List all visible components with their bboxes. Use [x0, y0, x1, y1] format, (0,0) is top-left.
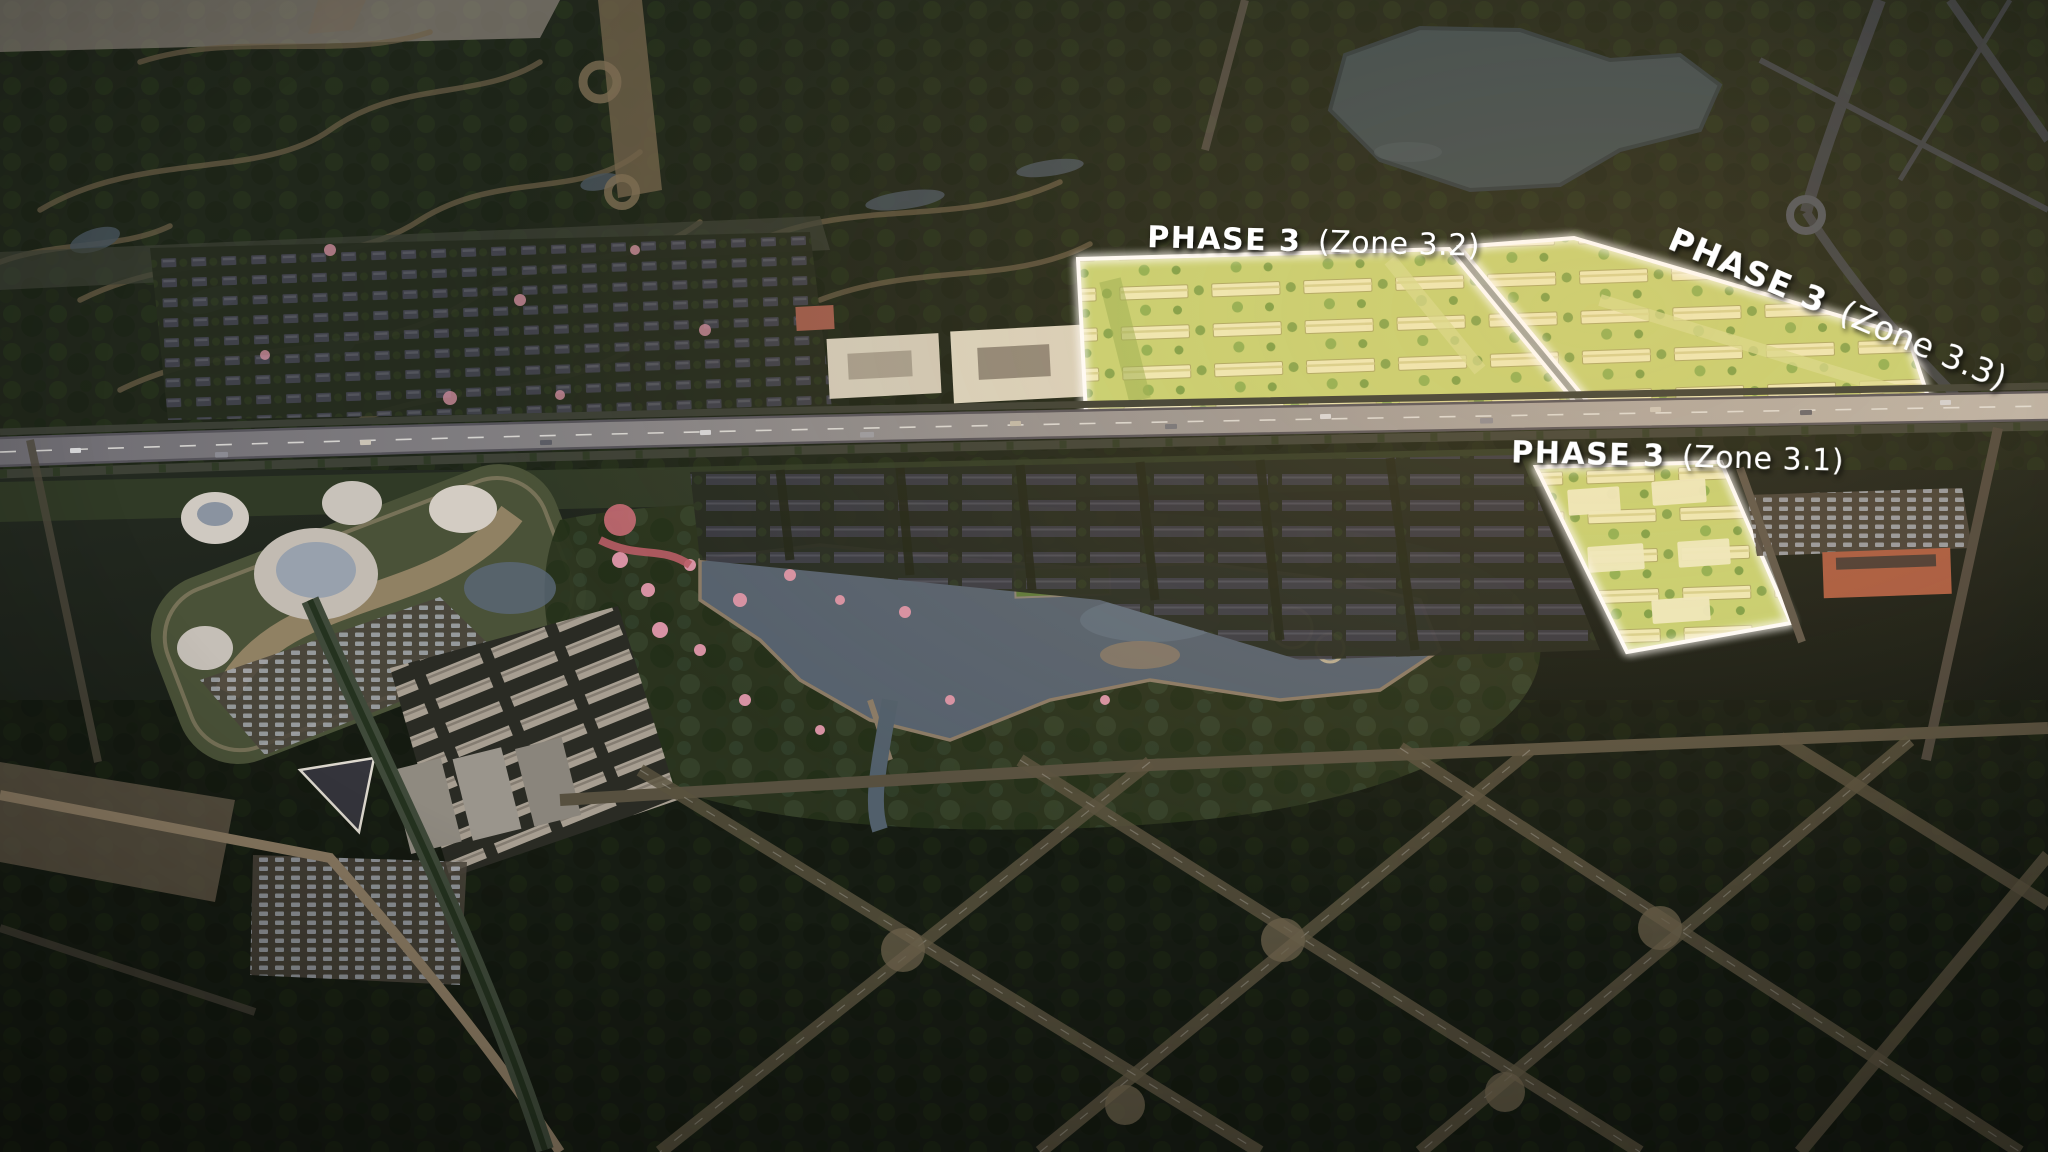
- zone-32-zone-text: (Zone 3.2): [1318, 224, 1481, 263]
- zone-31-phase-text: PHASE 3: [1511, 435, 1666, 474]
- zone-31-zone-text: (Zone 3.1): [1682, 439, 1845, 478]
- zone-32-phase-text: PHASE 3: [1147, 220, 1302, 259]
- masterplan-canvas: PHASE 3 (Zone 3.2) PHASE 3 (Zone 3.3) PH…: [0, 0, 2048, 1152]
- vignette-overlay: [0, 0, 2048, 1152]
- masterplan-aerial-render: PHASE 3 (Zone 3.2) PHASE 3 (Zone 3.3) PH…: [0, 0, 2048, 1152]
